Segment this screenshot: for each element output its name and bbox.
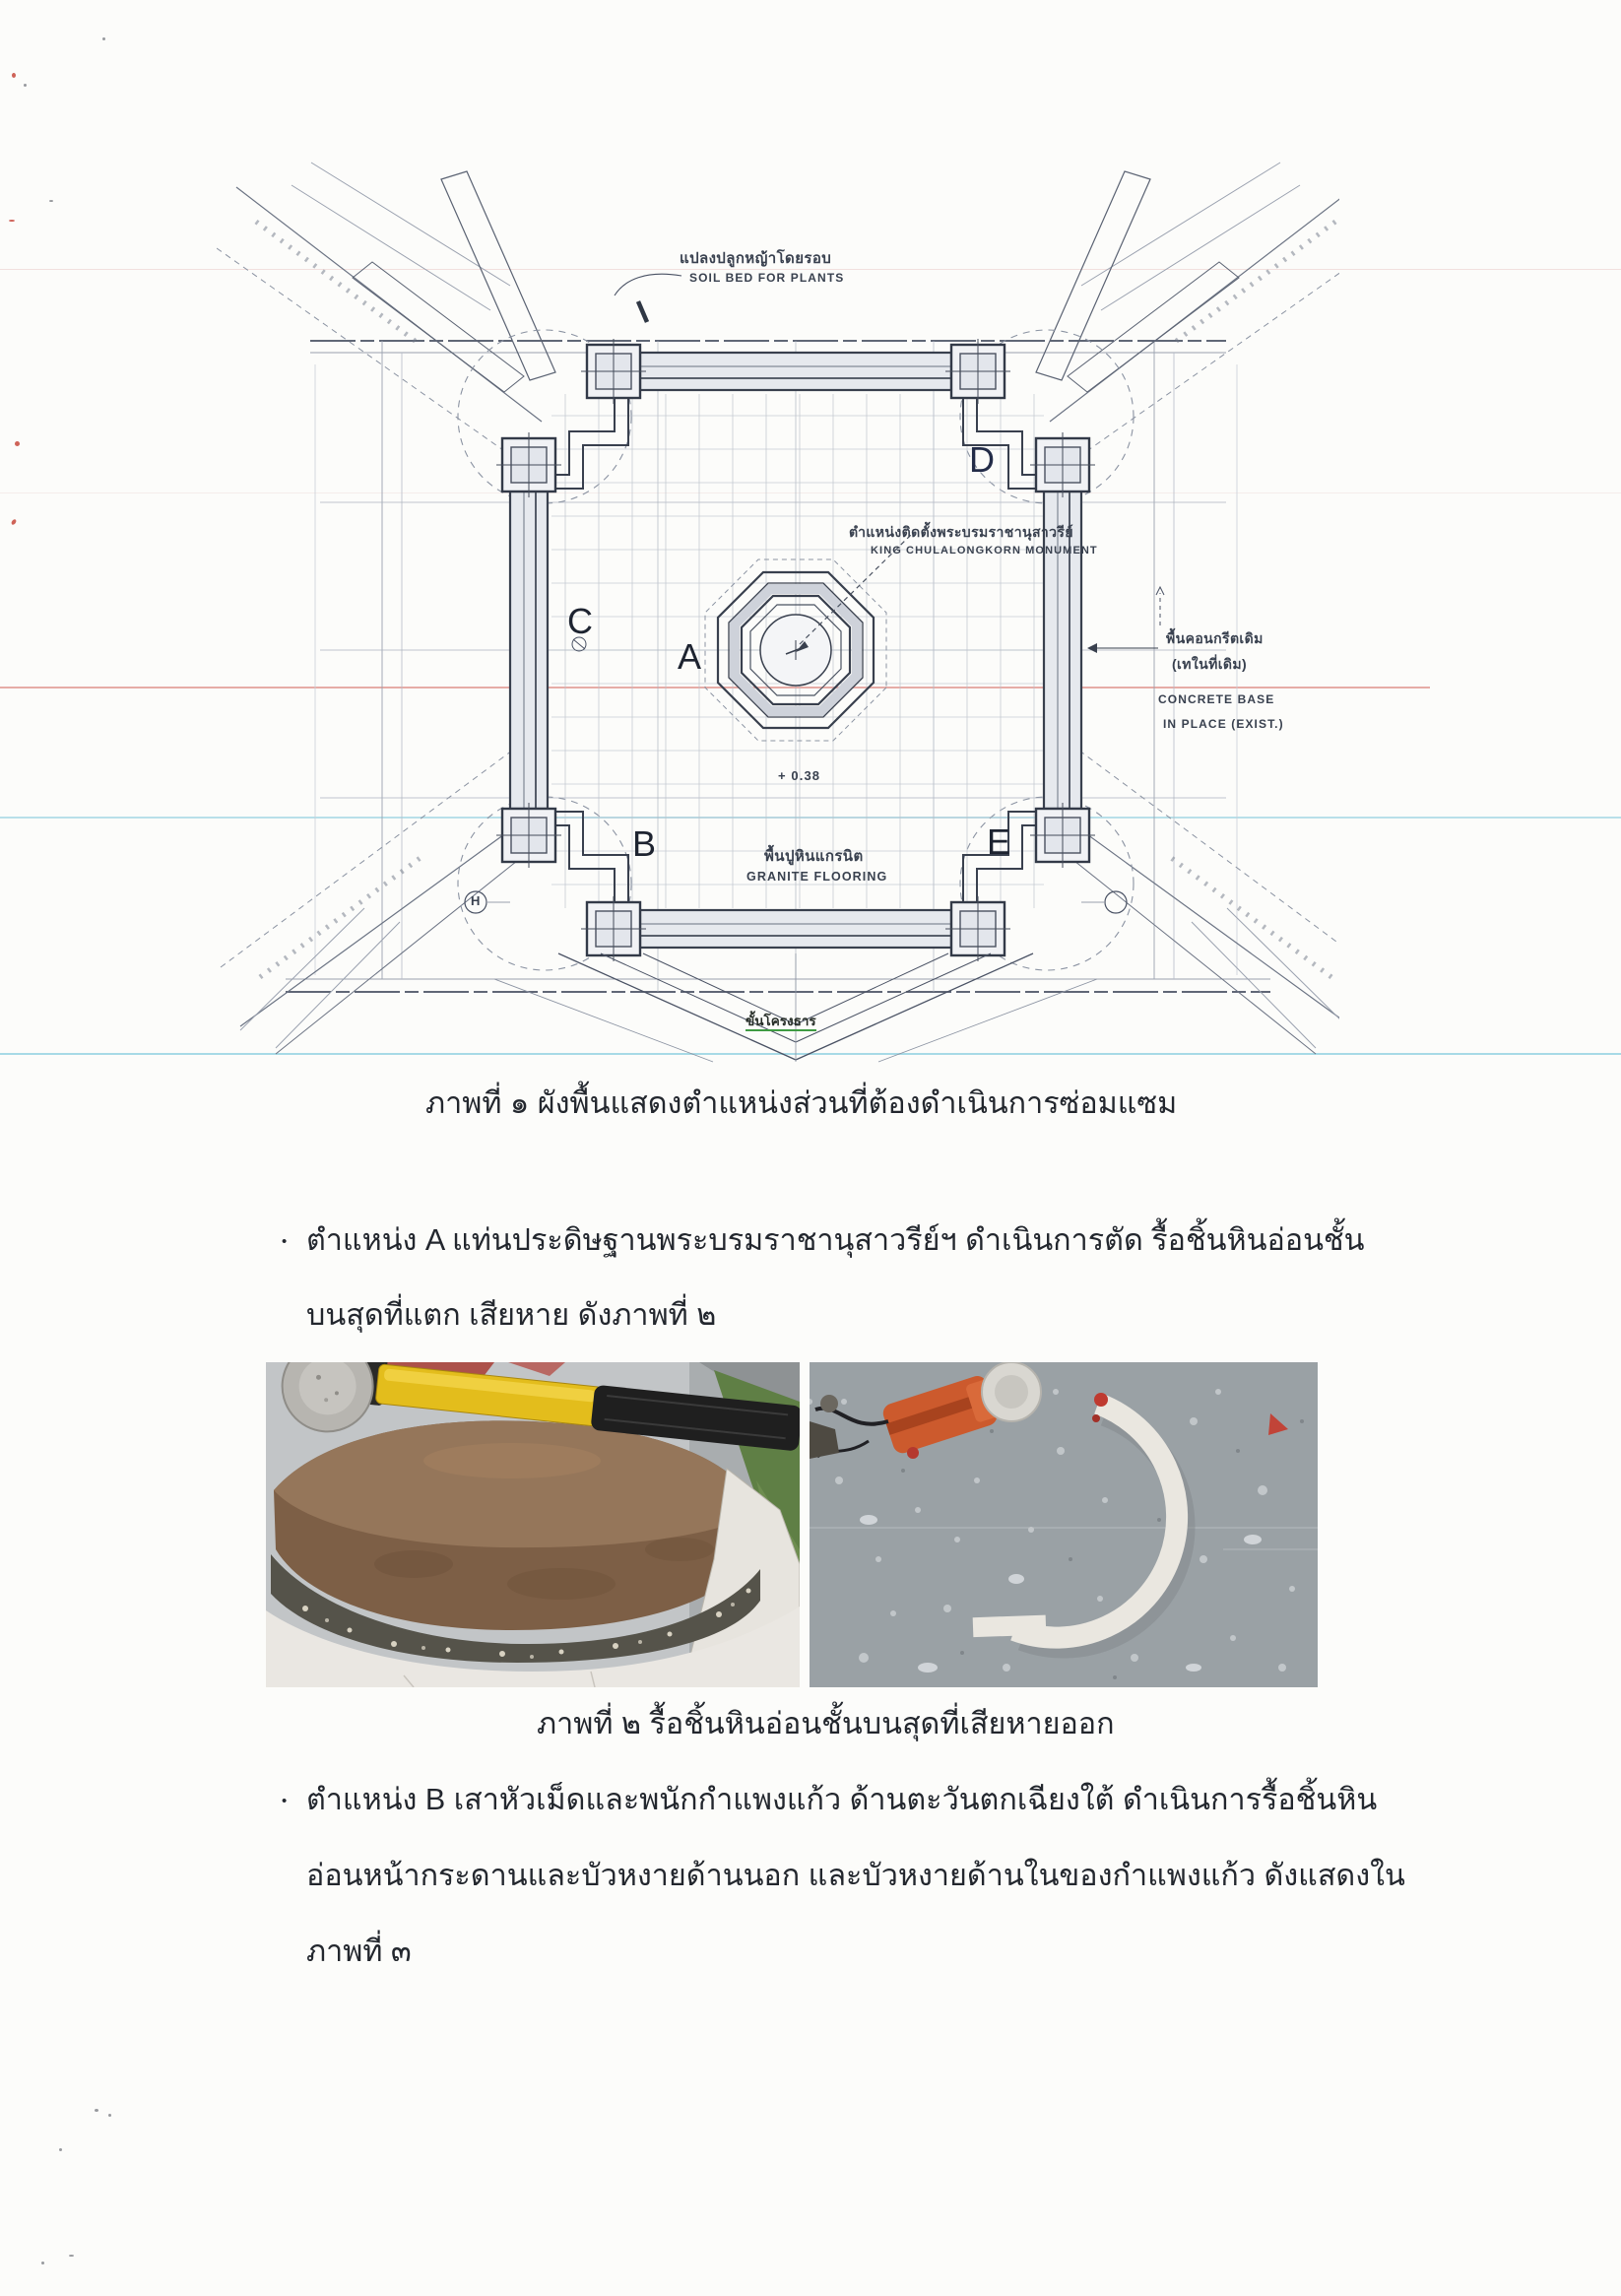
bullet-marker: • <box>282 1233 287 1250</box>
corner-hip-bottom-right <box>960 751 1339 1054</box>
scan-speck <box>59 2148 62 2151</box>
granite-annotation-english: GRANITE FLOORING <box>746 870 887 884</box>
bullet1-line1: ตำแหน่ง A แท่นประดิษฐานพระบรมราชานุสาวรี… <box>306 1221 1365 1259</box>
photo-figure2-left <box>266 1362 800 1687</box>
concrete-annotation-english-2: IN PLACE (EXIST.) <box>1163 717 1284 731</box>
figure1-caption: ภาพที่ ๑ ผังพื้นแสดงตำแหน่งส่วนที่ต้องดำ… <box>425 1080 1177 1127</box>
stair-annotation: ขั้นโครงธาร <box>746 1015 816 1031</box>
corner-hip-bottom-left <box>221 751 631 1054</box>
plan-label-C: C <box>567 601 593 642</box>
scan-speck <box>95 2109 98 2112</box>
soil-bed-annotation-thai: แปลงปลูกหญ้าโดยรอบ <box>680 246 831 270</box>
granite-annotation-thai: พื้นปูหินแกรนิต <box>764 844 864 868</box>
monument-annotation-english: KING CHULALONGKORN MONUMENT <box>871 545 1098 557</box>
scan-speck <box>49 200 53 202</box>
plan-label-B: B <box>632 823 656 865</box>
bullet2-line2: อ่อนหน้ากระดานและบัวหงายด้านนอก และบัวหง… <box>306 1857 1405 1894</box>
concrete-annotation-english-1: CONCRETE BASE <box>1158 692 1274 706</box>
concrete-annotation-thai-2: (เทในที่เดิม) <box>1172 654 1247 676</box>
figure2-caption: ภาพที่ ๒ รื้อชิ้นหินอ่อนชั้นบนสุดที่เสีย… <box>537 1700 1115 1747</box>
monument-annotation-thai: ตำแหน่งติดตั้งพระบรมราชานุสาวรีย์ <box>849 522 1073 544</box>
bullet-marker: • <box>282 1793 287 1809</box>
bullet2-line1: ตำแหน่ง B เสาหัวเม็ดและพนักกำแพงแก้ว ด้า… <box>306 1781 1377 1818</box>
scanned-report-page: A B C D E H แปลงปลูกหญ้าโดยรอบ SOIL BED … <box>0 0 1621 2296</box>
scan-speck <box>11 518 18 525</box>
grid-mark-H: H <box>471 893 480 908</box>
stair-chevrons <box>494 953 1097 1062</box>
scan-speck <box>69 2255 74 2257</box>
scan-speck <box>24 84 27 87</box>
scan-speck <box>108 2114 111 2117</box>
pedestal-octagon <box>705 534 912 741</box>
level-mark: + 0.38 <box>778 768 820 783</box>
bullet1-line2: บนสุดที่แตก เสียหาย ดังภาพที่ ๒ <box>306 1296 716 1334</box>
concrete-annotation-thai-1: พื้นคอนกรีตเดิม <box>1166 628 1264 650</box>
scan-speck <box>41 2262 44 2264</box>
plan-label-A: A <box>678 636 701 678</box>
soil-bed-annotation-english: SOIL BED FOR PLANTS <box>689 271 844 285</box>
photo-figure2-right <box>810 1362 1318 1687</box>
scan-speck <box>102 37 105 40</box>
scan-speck <box>12 73 16 78</box>
scan-speck <box>9 220 15 222</box>
plan-label-D: D <box>969 439 995 481</box>
corner-hip-top-right <box>960 163 1339 503</box>
scan-speck <box>15 441 20 446</box>
plan-label-E: E <box>987 821 1010 863</box>
bullet2-line3: ภาพที่ ๓ <box>306 1933 412 1970</box>
